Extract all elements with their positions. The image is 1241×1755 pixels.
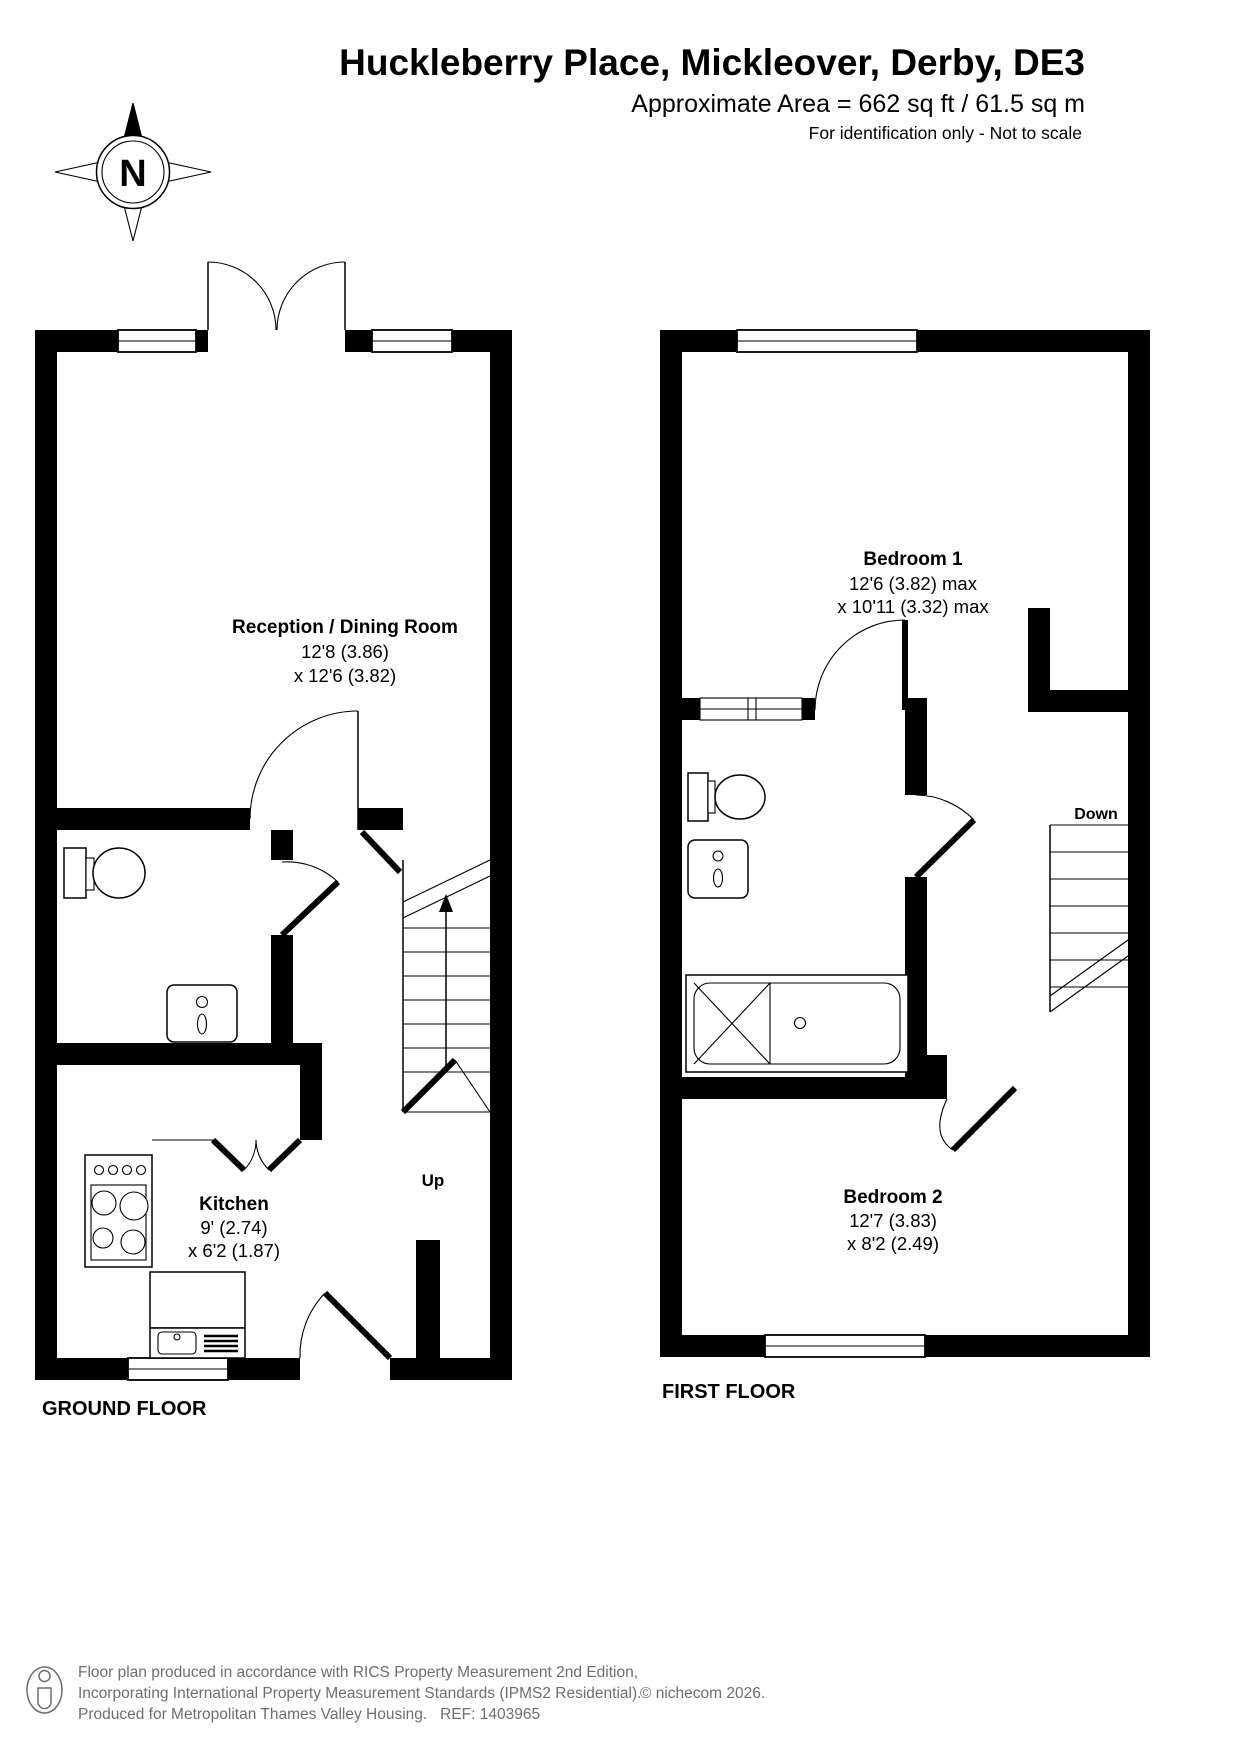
first-floor-label: FIRST FLOOR [662, 1381, 796, 1403]
floorplan-page: Huckleberry Place, Mickleover, Derby, DE… [0, 0, 1241, 1755]
window-icon [737, 330, 917, 352]
stairs-up [403, 860, 490, 1112]
footer-line1: Floor plan produced in accordance with R… [78, 1664, 638, 1681]
ground-floor-plan: Reception / Dining Room 12'8 (3.86) x 12… [35, 262, 512, 1420]
room-dim1: 12'8 (3.86) [301, 641, 389, 662]
room-dim2: x 6'2 (1.87) [188, 1240, 280, 1261]
room-dim1: 12'7 (3.83) [849, 1210, 937, 1231]
floorplan-drawing: Huckleberry Place, Mickleover, Derby, DE… [0, 0, 1241, 1755]
room-name: Bedroom 1 [863, 549, 963, 570]
toilet-icon [64, 848, 145, 898]
wc-door [282, 862, 338, 935]
room-name: Bedroom 2 [843, 1187, 942, 1208]
footer: Floor plan produced in accordance with R… [27, 1664, 765, 1723]
window-icon [372, 330, 452, 352]
bathroom-door [916, 795, 974, 877]
up-label: Up [422, 1171, 445, 1190]
basin-icon [167, 985, 237, 1042]
sink-icon [150, 1328, 245, 1358]
room-name: Kitchen [199, 1194, 269, 1215]
ground-floor-label: GROUND FLOOR [42, 1398, 207, 1420]
basin-icon [688, 840, 748, 898]
room-dim1: 9' (2.74) [200, 1217, 267, 1238]
room-name: Reception / Dining Room [232, 617, 458, 638]
person-logo-icon [27, 1667, 62, 1713]
french-doors [208, 262, 345, 330]
room-dim1: 12'6 (3.82) max [849, 573, 978, 594]
wardrobe [700, 698, 802, 720]
window-icon [765, 1335, 925, 1357]
down-label: Down [1074, 806, 1118, 823]
first-floor-plan: Bedroom 1 12'6 (3.82) max x 10'11 (3.32)… [660, 330, 1150, 1403]
toilet-icon [688, 773, 765, 821]
bedroom1-label: Bedroom 1 12'6 (3.82) max x 10'11 (3.32)… [837, 549, 989, 617]
compass-icon: N [55, 103, 211, 241]
up-arrow-head [439, 894, 453, 912]
compass-north-label: N [119, 153, 146, 195]
bedroom2-label: Bedroom 2 12'7 (3.83) x 8'2 (2.49) [843, 1187, 942, 1254]
stairs-down [1050, 825, 1128, 1012]
footer-line2: Incorporating International Property Mea… [78, 1685, 641, 1702]
room-dim2: x 8'2 (2.49) [847, 1233, 939, 1254]
room-dim2: x 12'6 (3.82) [294, 665, 396, 686]
header: Huckleberry Place, Mickleover, Derby, DE… [339, 42, 1085, 143]
bath-icon [686, 975, 908, 1072]
bedroom2-door [940, 1088, 1015, 1150]
kitchen-label: Kitchen 9' (2.74) x 6'2 (1.87) [188, 1194, 280, 1261]
disclaimer: For identification only - Not to scale [809, 123, 1082, 143]
footer-line3: Produced for Metropolitan Thames Valley … [78, 1706, 540, 1723]
page-title: Huckleberry Place, Mickleover, Derby, DE… [339, 42, 1085, 83]
bedroom1-door [815, 620, 905, 710]
window-icon [118, 330, 196, 352]
window-icon [128, 1358, 228, 1380]
hob-icon [85, 1155, 152, 1267]
reception-label: Reception / Dining Room 12'8 (3.86) x 12… [232, 617, 458, 686]
kitchen-doors [152, 1140, 300, 1170]
footer-copyright: © nichecom 2026. [640, 1685, 765, 1702]
room-dim2: x 10'11 (3.32) max [837, 596, 989, 617]
approximate-area: Approximate Area = 662 sq ft / 61.5 sq m [631, 90, 1085, 118]
worktop [150, 1272, 245, 1328]
front-door [300, 1293, 390, 1358]
